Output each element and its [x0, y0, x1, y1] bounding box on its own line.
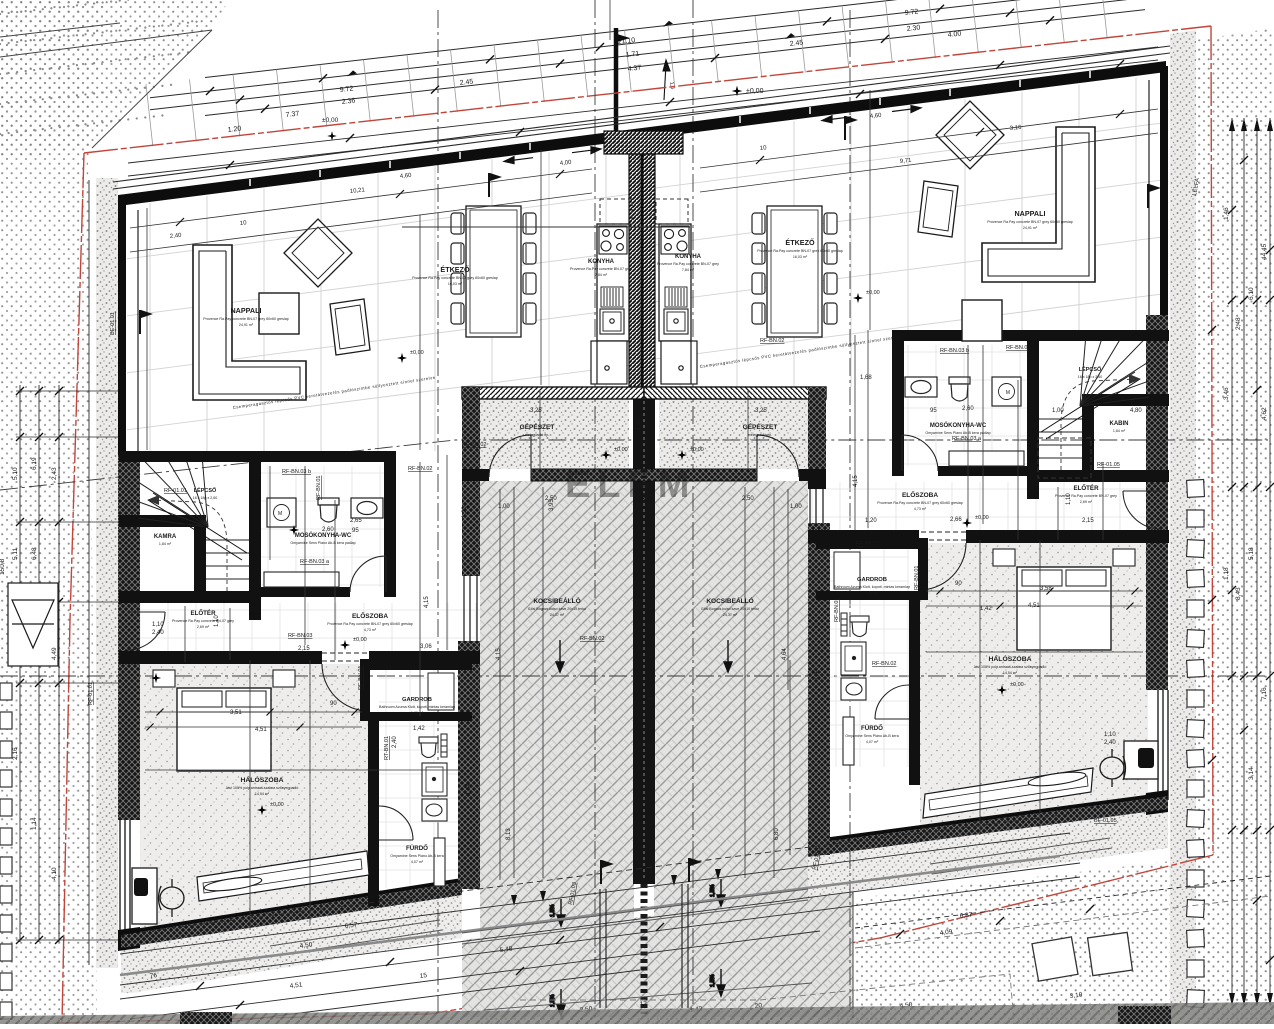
svg-text:1,05: 1,05 — [648, 688, 654, 700]
svg-text:4,60: 4,60 — [400, 173, 413, 180]
svg-text:M: M — [278, 511, 282, 517]
svg-text:1,80 m²: 1,80 m² — [411, 711, 424, 715]
svg-text:GARDROB: GARDROB — [857, 577, 887, 583]
svg-text:90: 90 — [330, 701, 337, 707]
svg-text:1,10: 1,10 — [152, 622, 164, 628]
svg-text:KAMRA: KAMRA — [154, 534, 177, 540]
svg-text:Provence Ra.Pay concrete BN-07: Provence Ra.Pay concrete BN-07 grey 60x6… — [412, 276, 498, 280]
svg-text:1,20: 1,20 — [865, 518, 877, 524]
svg-text:KOCSIBEÁLLÓ: KOCSIBEÁLLÓ — [706, 596, 753, 605]
svg-text:2,48: 2,48 — [1235, 317, 1242, 330]
svg-text:RF-BN.01: RF-BN.01 — [358, 666, 364, 690]
svg-text:MOSÓKONYHA-WC: MOSÓKONYHA-WC — [930, 421, 987, 429]
svg-text:melegpadló ép.: melegpadló ép. — [525, 433, 550, 437]
svg-text:Provence Ra.Pay concrete BN-07: Provence Ra.Pay concrete BN-07 grey 60x6… — [327, 622, 413, 626]
svg-text:ELŐTÉR: ELŐTÉR — [1073, 484, 1099, 492]
svg-text:±0,00: ±0,00 — [690, 447, 704, 453]
svg-text:ELŐTÉR: ELŐTÉR — [190, 609, 216, 617]
svg-text:2,65: 2,65 — [350, 518, 362, 524]
svg-text:10: 10 — [240, 220, 248, 227]
svg-text:Provence Ra.Pay concrete BN-07: Provence Ra.Pay concrete BN-07 grey — [657, 262, 719, 266]
svg-text:16,03 m²: 16,03 m² — [793, 255, 808, 259]
svg-text:1,46: 1,46 — [1223, 207, 1230, 220]
svg-text:±0,00: ±0,00 — [410, 350, 424, 356]
svg-text:±0,00: ±0,00 — [270, 802, 284, 808]
svg-text:2,16: 2,16 — [12, 747, 19, 760]
svg-text:2,60: 2,60 — [322, 527, 334, 533]
svg-text:2,15: 2,15 — [298, 646, 310, 652]
svg-text:7,84 m²: 7,84 m² — [682, 268, 695, 272]
svg-text:3,95: 3,95 — [549, 499, 555, 511]
svg-text:FÜRDŐ: FÜRDŐ — [406, 845, 428, 852]
svg-text:Omyamine Sens Plano Ab-B kera: Omyamine Sens Plano Ab-B kera — [390, 854, 444, 858]
svg-text:1,00: 1,00 — [1052, 408, 1064, 414]
svg-text:RF-BN.02: RF-BN.02 — [872, 661, 896, 667]
svg-text:1,84 m²: 1,84 m² — [1113, 429, 1126, 433]
svg-text:95: 95 — [930, 408, 937, 414]
svg-text:5,18: 5,18 — [1248, 547, 1255, 560]
svg-text:4,51: 4,51 — [255, 727, 267, 733]
svg-text:RF-01.01: RF-01.01 — [164, 488, 187, 494]
svg-text:1,18: 1,18 — [1223, 567, 1230, 580]
svg-text:±0,00: ±0,00 — [866, 290, 880, 296]
svg-text:RF-BN.03 a: RF-BN.03 a — [300, 559, 330, 565]
svg-text:4,73 m²: 4,73 m² — [914, 507, 927, 511]
svg-text:2,60: 2,60 — [962, 406, 974, 412]
svg-text:Provence Ra.Pay concrete BN-07: Provence Ra.Pay concrete BN-07 grey — [1055, 494, 1117, 498]
svg-text:10: 10 — [760, 145, 768, 152]
svg-text:RF-BN.03 b: RF-BN.03 b — [940, 348, 969, 354]
svg-text:2,43: 2,43 — [51, 467, 58, 480]
svg-text:ELFM: ELFM — [565, 464, 696, 506]
svg-text:1,80 m²: 1,80 m² — [866, 591, 879, 595]
svg-text:1,00: 1,00 — [498, 504, 510, 510]
svg-text:24,91 m²: 24,91 m² — [1023, 226, 1038, 230]
svg-text:GARDROB: GARDROB — [402, 697, 432, 703]
svg-text:4,15: 4,15 — [496, 648, 502, 660]
svg-text:RF-BN.03 a: RF-BN.03 a — [952, 436, 982, 442]
svg-text:Provence Ra.Pay concrete BN-07: Provence Ra.Pay concrete BN-07 grey — [570, 267, 632, 271]
svg-text:KABIN: KABIN — [1110, 421, 1129, 427]
svg-text:RF-BN.01: RF-BN.01 — [316, 476, 322, 500]
svg-text:FÜRDŐ: FÜRDŐ — [861, 725, 883, 732]
svg-text:KONYHA: KONYHA — [675, 254, 702, 260]
svg-text:±0,00: ±0,00 — [975, 515, 989, 521]
svg-text:2,50: 2,50 — [742, 496, 754, 502]
svg-text:Jávi 100% poly antracit-szalma: Jávi 100% poly antracit-szalma szőnyegpa… — [974, 665, 1047, 669]
svg-text:RF-BN.02: RF-BN.02 — [760, 338, 784, 344]
svg-text:ÉTKEZŐ: ÉTKEZŐ — [440, 265, 470, 274]
svg-text:1,14: 1,14 — [31, 817, 38, 830]
svg-text:44,45: 44,45 — [1261, 243, 1268, 260]
svg-text:3,06: 3,06 — [420, 644, 432, 650]
svg-text:2,69 m²: 2,69 m² — [1080, 500, 1093, 504]
svg-text:8,43: 8,43 — [1235, 587, 1242, 600]
svg-text:2,66: 2,66 — [950, 517, 962, 523]
svg-text:1,5%: 1,5% — [550, 994, 556, 1007]
svg-text:5,10: 5,10 — [12, 467, 19, 480]
svg-text:ÉTKEZŐ: ÉTKEZŐ — [785, 238, 815, 247]
svg-text:Omyamine Sens Plano Ab-B kera: Omyamine Sens Plano Ab-B kera padlap — [290, 541, 355, 545]
svg-text:melegpadló ép.: melegpadló ép. — [748, 433, 773, 437]
svg-text:±0,00: ±0,00 — [322, 117, 339, 124]
svg-text:2,40: 2,40 — [392, 736, 398, 748]
svg-text:LÉPCSŐ: LÉPCSŐ — [1079, 365, 1102, 373]
svg-text:Omyamine Sens Plano Ab-B kera: Omyamine Sens Plano Ab-B kera padlap — [925, 431, 990, 435]
svg-text:3,25: 3,25 — [530, 408, 542, 414]
svg-text:1,20: 1,20 — [462, 506, 468, 518]
svg-text:1,42: 1,42 — [413, 726, 425, 732]
svg-text:Jávi 100% poly antracit-szalma: Jávi 100% poly antracit-szalma szőnyegpa… — [226, 786, 299, 790]
svg-text:3,46: 3,46 — [1223, 387, 1230, 400]
svg-text:24,91 m²: 24,91 m² — [239, 323, 254, 327]
svg-text:RF-BN.02: RF-BN.02 — [1006, 345, 1030, 351]
svg-text:90: 90 — [955, 581, 962, 587]
svg-text:1,42: 1,42 — [980, 606, 992, 612]
svg-text:Provence Ra.Pay concrete BN-07: Provence Ra.Pay concrete BN-07 grey 60x6… — [987, 220, 1073, 224]
svg-text:2,69 m²: 2,69 m² — [197, 625, 210, 629]
svg-text:2,15: 2,15 — [1082, 518, 1094, 524]
svg-text:24,37 m²: 24,37 m² — [550, 613, 565, 617]
svg-text:BF-01.05: BF-01.05 — [1094, 818, 1117, 824]
svg-text:3,25: 3,25 — [755, 408, 767, 414]
svg-text:3,51: 3,51 — [230, 710, 242, 716]
svg-text:4,07 m²: 4,07 m² — [866, 740, 879, 744]
svg-text:2,40: 2,40 — [152, 630, 164, 636]
svg-text:4,00: 4,00 — [560, 160, 573, 167]
svg-text:1,10: 1,10 — [1066, 493, 1072, 505]
svg-text:RF-BN.02: RF-BN.02 — [580, 636, 604, 642]
svg-text:3,30: 3,30 — [636, 598, 642, 610]
svg-text:76: 76 — [149, 972, 157, 980]
svg-text:RF-BN.03: RF-BN.03 — [288, 633, 312, 639]
svg-text:1,5%: 1,5% — [710, 884, 716, 897]
svg-text:16,03 m²: 16,03 m² — [448, 282, 463, 286]
svg-text:HÁLÓSZOBA: HÁLÓSZOBA — [988, 654, 1031, 663]
svg-text:4,60: 4,60 — [870, 113, 883, 120]
svg-text:6,80: 6,80 — [774, 828, 780, 840]
svg-text:ELŐSZOBA: ELŐSZOBA — [352, 611, 388, 620]
svg-text:±0,00: ±0,00 — [614, 447, 628, 453]
svg-text:150,8: 150,8 — [0, 558, 6, 575]
svg-text:NAPPALI: NAPPALI — [230, 306, 261, 315]
svg-text:1,5%: 1,5% — [550, 904, 556, 917]
svg-text:ELŐSZOBA: ELŐSZOBA — [902, 490, 938, 499]
svg-text:±0,00: ±0,00 — [1010, 682, 1024, 688]
svg-text:RF-BN.03 b: RF-BN.03 b — [282, 469, 311, 475]
svg-text:KONYHA: KONYHA — [588, 259, 615, 265]
svg-text:4,49: 4,49 — [51, 647, 58, 660]
svg-text:4,64: 4,64 — [782, 648, 788, 660]
svg-text:24,37 m²: 24,37 m² — [723, 613, 738, 617]
svg-text:RF-BN.02: RF-BN.02 — [462, 442, 486, 448]
svg-text:1,10: 1,10 — [1104, 732, 1116, 738]
svg-text:4,62: 4,62 — [1261, 407, 1268, 420]
svg-text:1,10: 1,10 — [214, 615, 220, 627]
svg-text:Omyamine Sens Plano Ab-B kera: Omyamine Sens Plano Ab-B kera — [845, 734, 899, 738]
svg-text:Provence Ra.Pay concrete BN-07: Provence Ra.Pay concrete BN-07 grey 60x6… — [757, 249, 843, 253]
svg-text:±0,00: ±0,00 — [353, 637, 367, 643]
svg-text:2,40: 2,40 — [1104, 740, 1116, 746]
svg-text:9,71: 9,71 — [900, 158, 913, 165]
svg-text:RF-01.05: RF-01.05 — [1097, 462, 1120, 468]
svg-text:2,40: 2,40 — [170, 233, 183, 240]
svg-text:8,13: 8,13 — [506, 828, 512, 840]
svg-text:3,16: 3,16 — [1010, 125, 1023, 132]
svg-text:7,16: 7,16 — [1261, 687, 1268, 700]
svg-text:14,54 m²: 14,54 m² — [1003, 671, 1018, 675]
svg-text:6,19: 6,19 — [31, 457, 38, 470]
svg-text:RF-BN.01: RF-BN.01 — [914, 566, 920, 590]
svg-text:Gősi Bogacs kulso kave 20x10 t: Gősi Bogacs kulso kave 20x10 terko — [701, 607, 759, 611]
svg-text:Provence Ra.Pay concrete BN-07: Provence Ra.Pay concrete BN-07 grey 60x6… — [877, 501, 963, 505]
svg-text:5,11: 5,11 — [12, 547, 19, 560]
svg-text:4,07 m²: 4,07 m² — [411, 860, 424, 864]
svg-text:7,84 m²: 7,84 m² — [595, 273, 608, 277]
svg-text:Bathroom Azuma Klott, kopott,: Bathroom Azuma Klott, kopott, mintas ker… — [379, 705, 455, 709]
svg-text:1,68: 1,68 — [860, 375, 872, 381]
svg-text:1,5%: 1,5% — [710, 974, 716, 987]
svg-text:HÁLÓSZOBA: HÁLÓSZOBA — [240, 775, 283, 784]
svg-text:RF-BN.01: RF-BN.01 — [834, 598, 840, 622]
svg-text:4,73 m²: 4,73 m² — [364, 628, 377, 632]
svg-text:12: 12 — [639, 1000, 647, 1008]
svg-text:16 x 18p x 2,60: 16 x 18p x 2,60 — [1078, 375, 1103, 379]
svg-text:4,15: 4,15 — [853, 475, 859, 487]
svg-text:GÉPÉSZET: GÉPÉSZET — [743, 422, 778, 431]
svg-text:4,10: 4,10 — [51, 867, 58, 880]
svg-text:4,51: 4,51 — [1028, 603, 1040, 609]
svg-text:Provence Ra.Pay concrete BN-07: Provence Ra.Pay concrete BN-07 grey — [172, 619, 234, 623]
svg-text:1,44: 1,44 — [814, 668, 820, 680]
svg-text:RF-BN.01: RF-BN.01 — [856, 541, 880, 547]
svg-text:BE-01.01: BE-01.01 — [110, 312, 116, 335]
svg-text:1,84 m²: 1,84 m² — [159, 542, 172, 546]
svg-text:GÉPÉSZET: GÉPÉSZET — [520, 422, 555, 431]
svg-text:14,54 m²: 14,54 m² — [255, 792, 270, 796]
svg-text:4,15: 4,15 — [424, 596, 430, 608]
svg-text:3,10: 3,10 — [644, 488, 650, 500]
svg-text:1,00: 1,00 — [790, 504, 802, 510]
svg-text:Gősi Bogacs kulso kave 20x10 t: Gősi Bogacs kulso kave 20x10 terko — [528, 607, 586, 611]
svg-text:4,80: 4,80 — [1130, 408, 1142, 414]
svg-text:RF-01.01: RF-01.01 — [88, 682, 94, 705]
svg-text:M: M — [1006, 390, 1010, 396]
svg-text:95: 95 — [352, 528, 359, 534]
svg-text:KOCSIBEÁLLÓ: KOCSIBEÁLLÓ — [533, 596, 580, 605]
svg-text:Bathroom Azuma Klott, kopott,: Bathroom Azuma Klott, kopott, mintas ker… — [834, 585, 910, 589]
svg-text:RT-BN.01: RT-BN.01 — [384, 736, 390, 760]
svg-text:15: 15 — [419, 972, 427, 980]
svg-text:LÉPCSŐ: LÉPCSŐ — [194, 486, 217, 494]
svg-text:RF-BN.02: RF-BN.02 — [408, 466, 432, 472]
svg-text:16 x 18p x 2,60: 16 x 18p x 2,60 — [193, 496, 218, 500]
svg-text:3,14: 3,14 — [1248, 767, 1255, 780]
svg-text:1,20: 1,20 — [636, 418, 642, 430]
svg-text:1,44: 1,44 — [466, 783, 472, 795]
svg-text:NAPPALI: NAPPALI — [1014, 209, 1045, 218]
svg-text:6,10: 6,10 — [1248, 287, 1255, 300]
svg-text:Provence Ra.Pay concrete BN-07: Provence Ra.Pay concrete BN-07 grey 60x6… — [203, 317, 289, 321]
svg-text:6,48: 6,48 — [31, 547, 38, 560]
svg-text:3,58: 3,58 — [1040, 586, 1052, 592]
